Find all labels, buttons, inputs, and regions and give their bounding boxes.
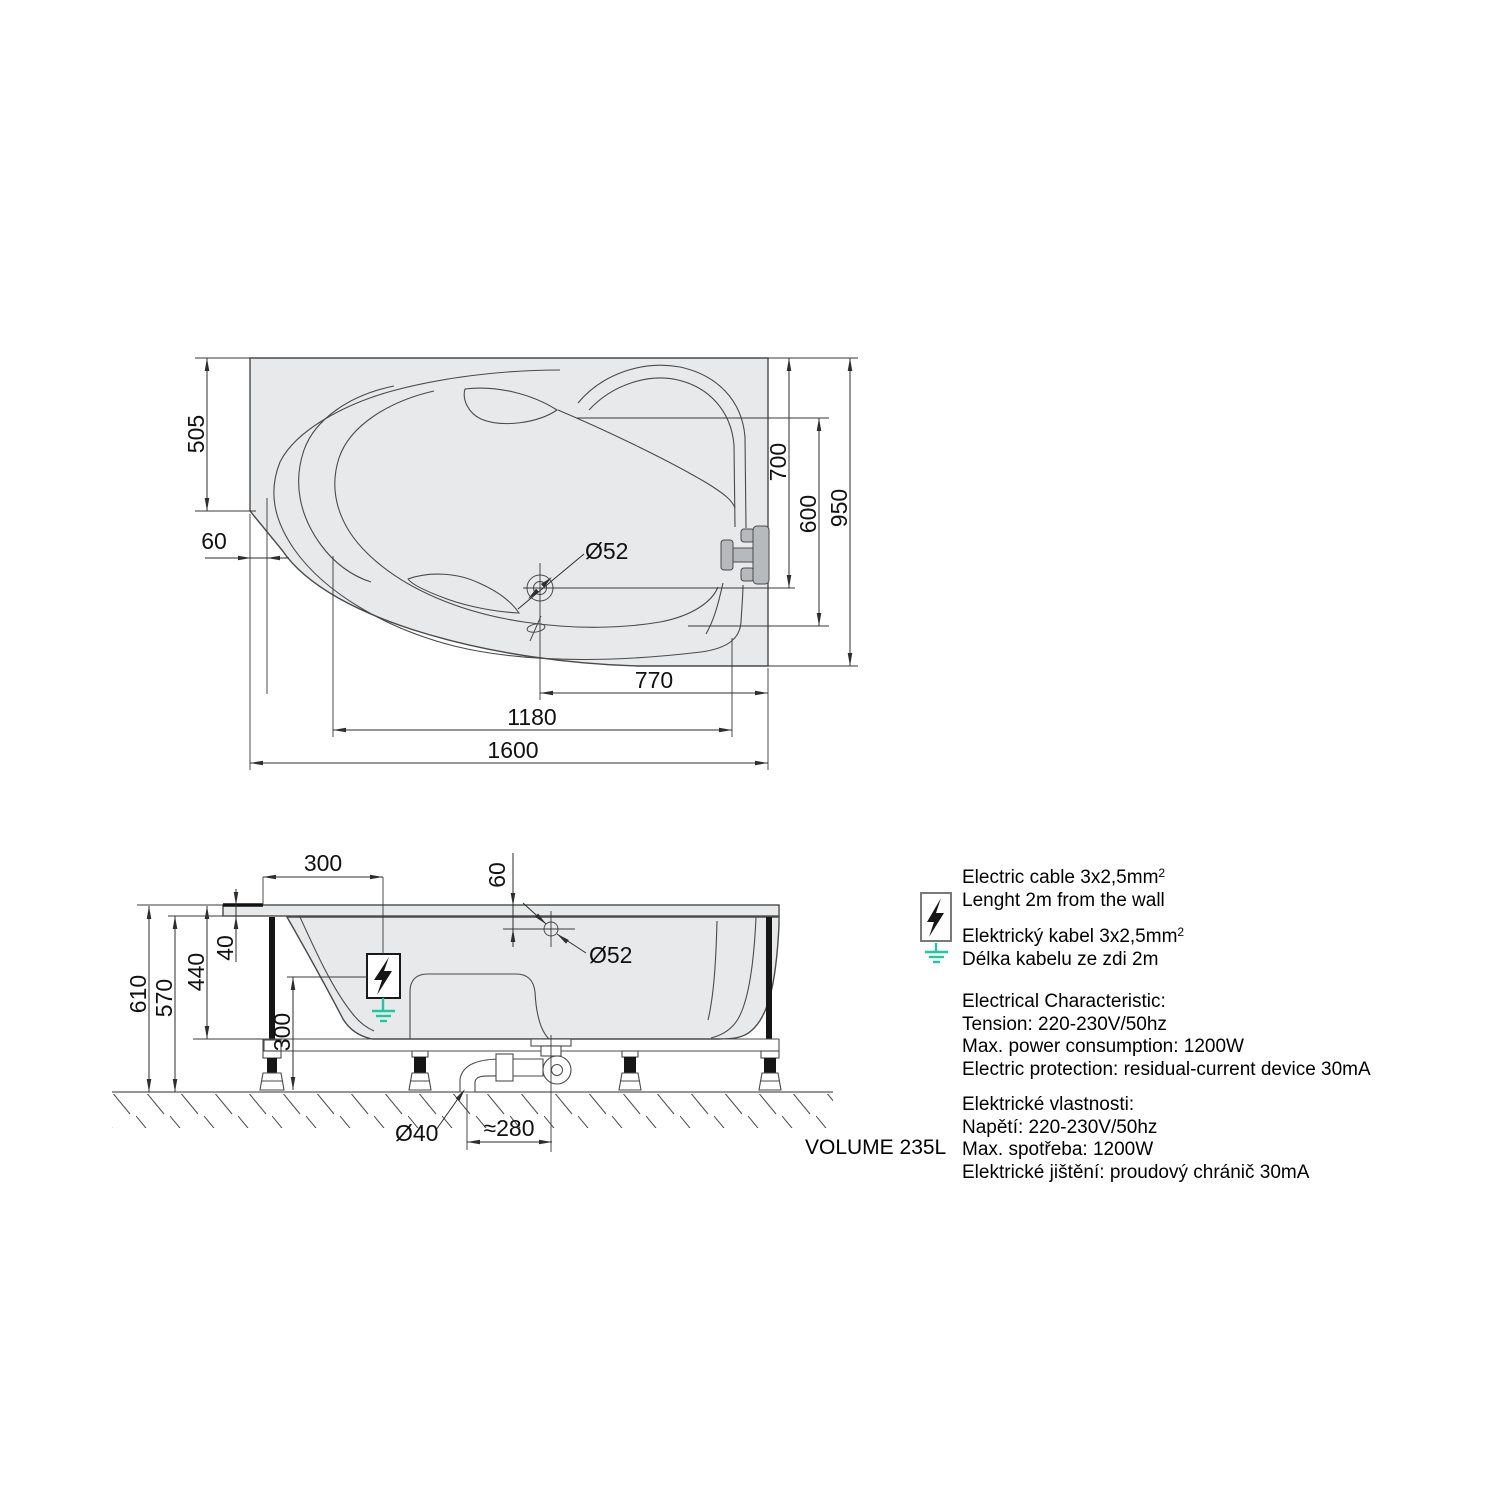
- dim-770-label: 770: [635, 667, 673, 693]
- dim-300-vertical-label: 300: [269, 1013, 295, 1051]
- floor-hatching: [112, 1094, 833, 1128]
- dim-40-label: 40: [212, 935, 238, 961]
- dim-440: 440: [183, 906, 263, 1039]
- note-cable-cz: Elektrický kabel 3x2,5mm2 Délka kabelu z…: [962, 921, 1482, 971]
- leg-1: [260, 1051, 284, 1090]
- note-line: Délka kabelu ze zdi 2m: [962, 949, 1482, 972]
- volume-label: VOLUME 235L: [805, 1136, 946, 1160]
- note-line: Electric cable 3x2,5mm2: [962, 862, 1482, 890]
- dim-570-label: 570: [151, 979, 177, 1017]
- drawing-canvas: 505 60 700 600: [0, 0, 1500, 1500]
- dim-60-plan-label: 60: [201, 528, 227, 554]
- dim-610-label: 610: [125, 975, 151, 1013]
- dim-700: 700: [765, 358, 858, 588]
- note-line: Napětí: 220-230V/50hz: [962, 1117, 1482, 1140]
- legend-electric-symbol: [921, 893, 951, 962]
- note-line: Electrical Characteristic:: [962, 991, 1482, 1014]
- dim-60-side-label: 60: [484, 862, 510, 888]
- technical-drawing: 505 60 700 600: [0, 0, 1500, 1500]
- note-line: Elektrický kabel 3x2,5mm2: [962, 921, 1482, 949]
- dim-280-label: ≈280: [484, 1115, 535, 1141]
- drain-diameter-plan-label: Ø52: [585, 538, 628, 564]
- waste-diameter-label: Ø40: [395, 1120, 438, 1146]
- frame-rails: [263, 1039, 779, 1051]
- note-line: Max. power consumption: 1200W: [962, 1036, 1482, 1059]
- leg-3: [619, 1051, 641, 1090]
- support-bar-right: [766, 917, 772, 1039]
- note-line: Electric protection: residual-current de…: [962, 1059, 1482, 1082]
- note-cable-en: Electric cable 3x2,5mm2 Lenght 2m from t…: [962, 862, 1482, 912]
- drain-diameter-side-label: Ø52: [589, 942, 632, 968]
- dim-505: 505: [183, 358, 256, 511]
- dim-40: 40: [212, 889, 238, 962]
- tub-shell-section: [287, 917, 779, 1039]
- superscript: 2: [1158, 866, 1165, 880]
- leg-4: [759, 1051, 781, 1090]
- rim-slab: [223, 905, 779, 916]
- dim-770: 770: [540, 667, 768, 695]
- note-line: Elektrické jištění: proudový chránič 30m…: [962, 1162, 1482, 1185]
- note-line: Max. spotřeba: 1200W: [962, 1139, 1482, 1162]
- dim-600-label: 600: [795, 495, 821, 533]
- dim-700-label: 700: [765, 443, 791, 481]
- note-line: Tension: 220-230V/50hz: [962, 1014, 1482, 1037]
- trap-body: [543, 1056, 571, 1084]
- note-spec-en: Electrical Characteristic: Tension: 220-…: [962, 991, 1482, 1081]
- legend-earth-symbol-icon: [925, 943, 948, 962]
- dim-1600-label: 1600: [487, 737, 538, 763]
- dim-300-top-label: 300: [304, 850, 342, 876]
- dim-1180-label: 1180: [507, 704, 556, 730]
- note-line: Lenght 2m from the wall: [962, 890, 1482, 913]
- dim-950-label: 950: [826, 489, 852, 527]
- dim-505-label: 505: [183, 415, 209, 453]
- dim-440-label: 440: [183, 953, 209, 991]
- note-spec-cz: Elektrické vlastnosti: Napětí: 220-230V/…: [962, 1094, 1482, 1184]
- superscript: 2: [1177, 925, 1184, 939]
- leg-2: [409, 1051, 431, 1090]
- side-view: 300 60 Ø52 40 440: [112, 850, 833, 1152]
- note-line: Elektrické vlastnosti:: [962, 1094, 1482, 1117]
- pipe-nut: [496, 1054, 513, 1081]
- top-view: 505 60 700 600: [183, 358, 858, 770]
